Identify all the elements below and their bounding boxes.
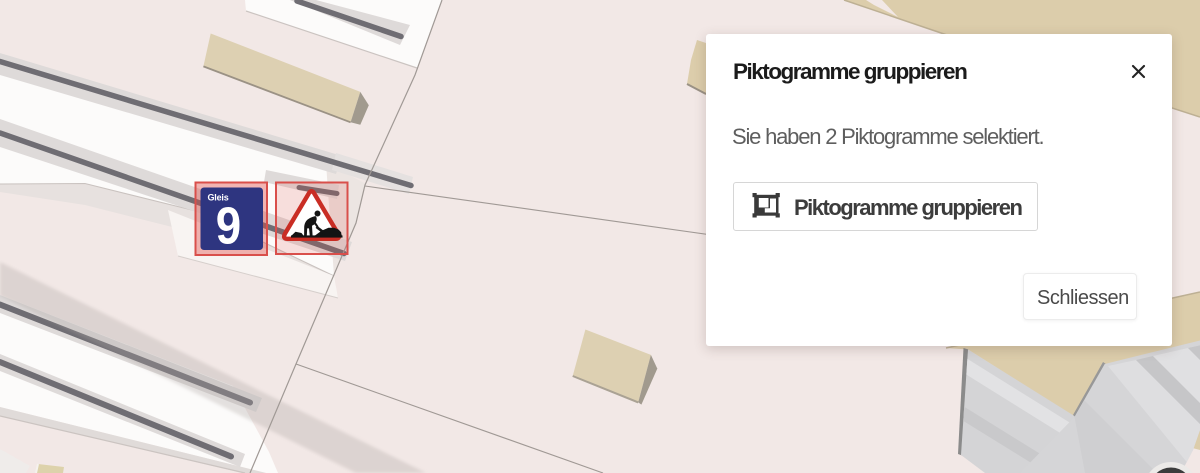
- svg-text:9: 9: [216, 198, 241, 255]
